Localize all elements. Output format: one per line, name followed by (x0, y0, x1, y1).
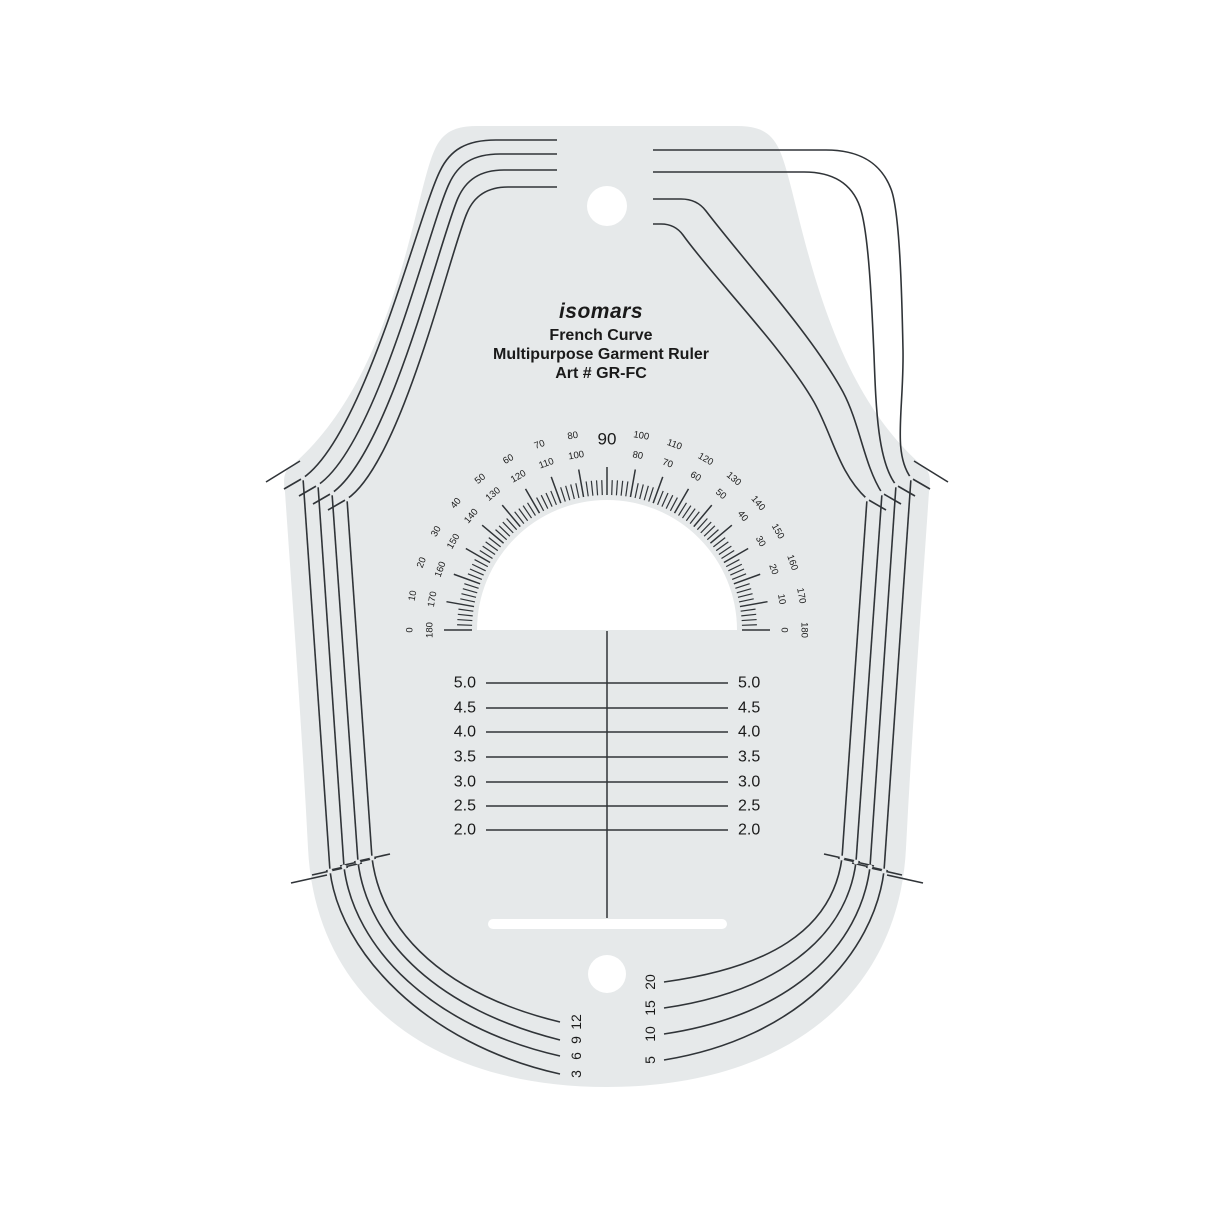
scale-label-left: 4.5 (454, 700, 476, 717)
scale-label-left: 3.5 (454, 749, 476, 766)
corner-scale-label-left: 12 (568, 1014, 584, 1030)
scale-label-right: 4.5 (738, 700, 760, 717)
protractor-tick (602, 480, 603, 495)
scale-label-right: 2.0 (738, 822, 760, 839)
buttonhole-slot (488, 919, 727, 929)
scale-label-left: 2.0 (454, 822, 476, 839)
protractor-tick (742, 625, 757, 626)
protractor-degree-label-inner: 0 (779, 627, 790, 632)
corner-scale-label-left: 9 (568, 1036, 584, 1044)
protractor-apex-label: 90 (598, 430, 617, 449)
protractor-degree-label-outer: 80 (567, 430, 579, 443)
corner-scale-label-right: 5 (642, 1056, 658, 1064)
corner-scale-label-left: 3 (568, 1070, 584, 1078)
corner-scale-label-right: 20 (642, 974, 658, 990)
protractor-degree-label-outer: 10 (407, 590, 420, 602)
hanging-hole-top (587, 186, 627, 226)
product-image: isomars French Curve Multipurpose Garmen… (0, 0, 1214, 1214)
protractor-tick (457, 625, 472, 626)
scale-label-right: 3.0 (738, 774, 760, 791)
protractor-tick (612, 480, 613, 495)
protractor-degree-label-inner: 80 (632, 449, 644, 462)
corner-scale-label-right: 15 (642, 1000, 658, 1016)
garment-ruler-image: isomars French Curve Multipurpose Garmen… (0, 0, 1214, 1214)
protractor-degree-label-outer: 180 (799, 622, 810, 638)
protractor-degree-label-inner: 10 (775, 593, 788, 605)
art-number: Art # GR-FC (555, 365, 647, 382)
corner-scale-label-left: 6 (568, 1052, 584, 1060)
product-description: Multipurpose Garment Ruler (493, 346, 709, 363)
scale-label-left: 4.0 (454, 724, 476, 741)
scale-label-right: 3.5 (738, 749, 760, 766)
scale-label-right: 5.0 (738, 675, 760, 692)
scale-label-right: 4.0 (738, 724, 760, 741)
scale-label-left: 5.0 (454, 675, 476, 692)
scale-label-right: 2.5 (738, 798, 760, 815)
hanging-hole-bottom (588, 955, 626, 993)
scale-label-left: 3.0 (454, 774, 476, 791)
brand-logo: isomars (559, 300, 643, 323)
scale-label-left: 2.5 (454, 798, 476, 815)
product-name: French Curve (549, 327, 652, 344)
protractor-degree-label-outer: 0 (405, 627, 416, 632)
corner-scale-label-right: 10 (642, 1026, 658, 1042)
protractor-degree-label-inner: 180 (425, 622, 436, 638)
